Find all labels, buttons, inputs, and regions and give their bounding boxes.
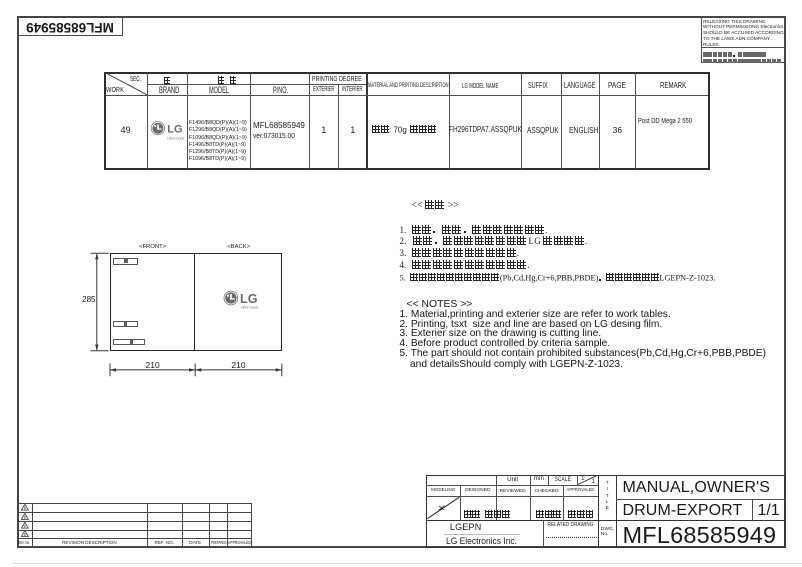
svg-text:Life's Good: Life's Good (167, 135, 184, 140)
svg-text:LG: LG (167, 123, 182, 135)
svg-text:Life's Good: Life's Good (241, 305, 259, 310)
